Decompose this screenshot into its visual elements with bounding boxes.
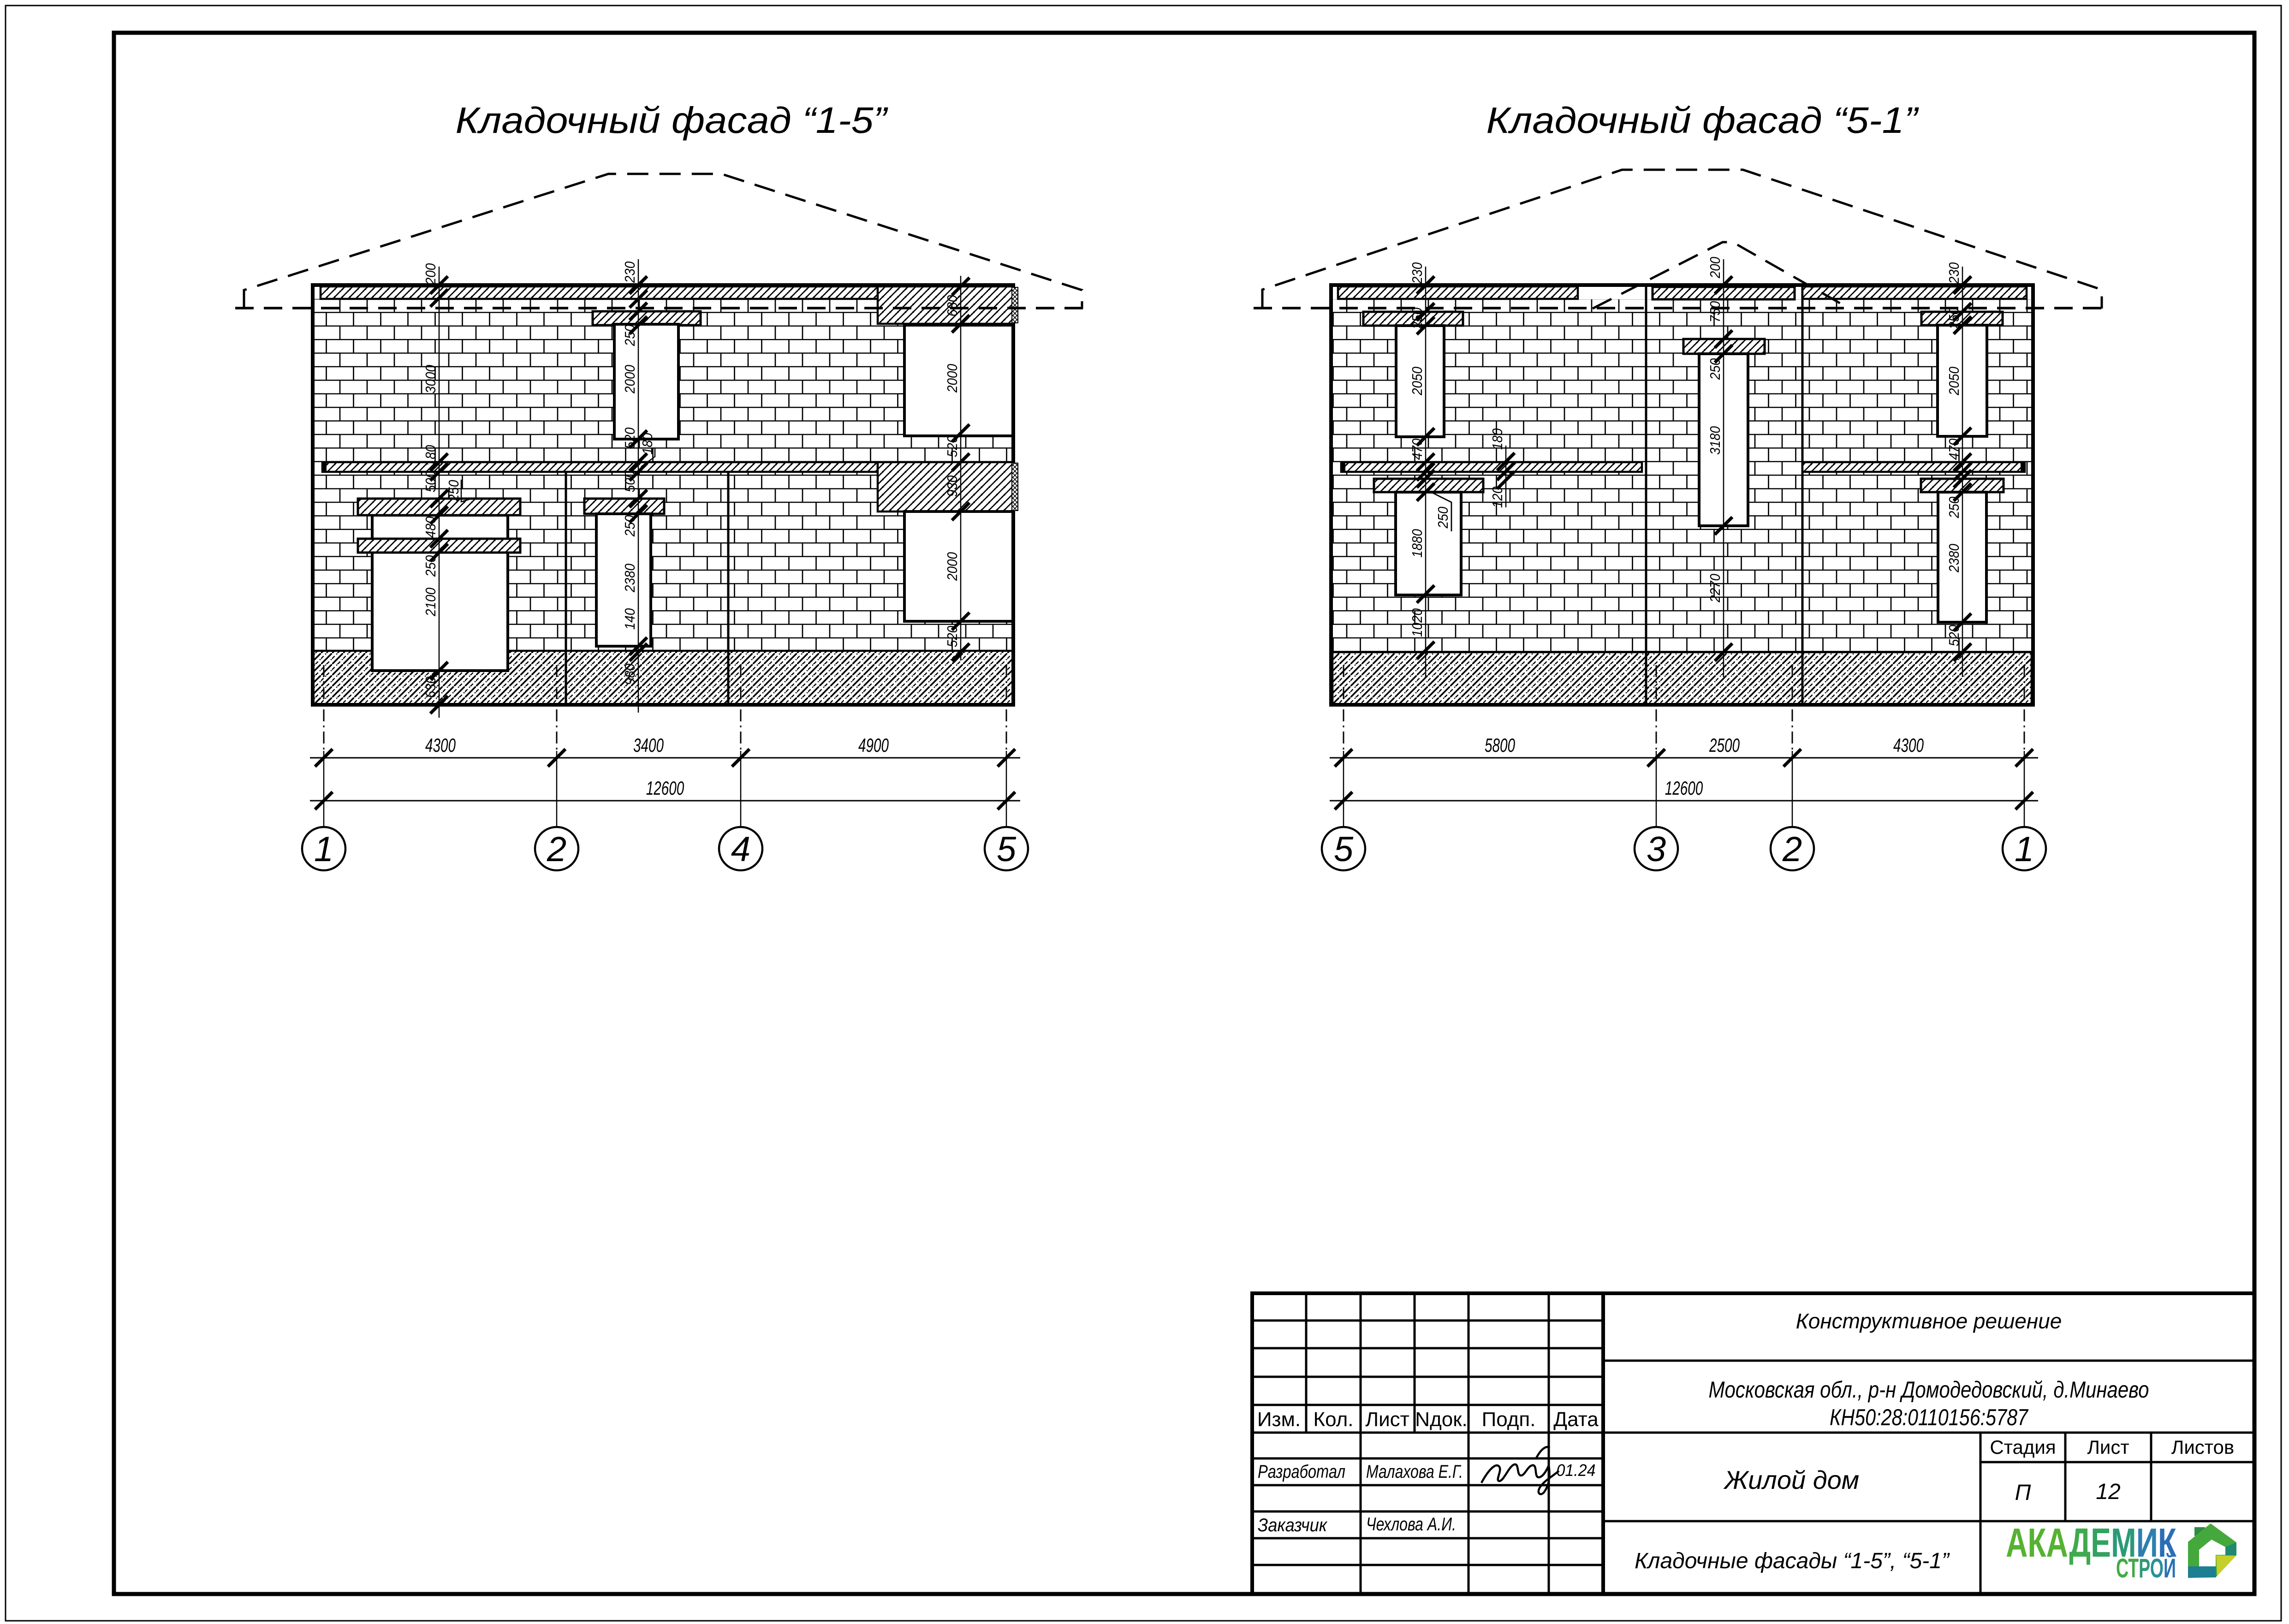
svg-text:250: 250 bbox=[1409, 308, 1425, 329]
svg-text:2500: 2500 bbox=[1709, 734, 1740, 756]
svg-text:180: 180 bbox=[422, 445, 439, 467]
svg-text:3: 3 bbox=[1647, 830, 1666, 869]
svg-text:12: 12 bbox=[2096, 1480, 2120, 1504]
svg-text:250: 250 bbox=[422, 555, 439, 577]
svg-text:01.24: 01.24 bbox=[1557, 1461, 1596, 1480]
svg-text:Разработал: Разработал bbox=[1258, 1462, 1345, 1482]
svg-text:2050: 2050 bbox=[1946, 367, 1962, 396]
svg-text:500: 500 bbox=[422, 471, 439, 493]
svg-text:5: 5 bbox=[1334, 830, 1354, 869]
svg-text:630: 630 bbox=[422, 677, 439, 698]
svg-text:Конструктивное решение: Конструктивное решение bbox=[1796, 1309, 2062, 1333]
svg-text:12600: 12600 bbox=[1665, 777, 1703, 799]
svg-text:Изм.: Изм. bbox=[1257, 1408, 1301, 1431]
svg-text:П: П bbox=[2015, 1481, 2031, 1505]
svg-text:250: 250 bbox=[446, 480, 462, 502]
svg-text:Лист: Лист bbox=[2087, 1436, 2129, 1458]
svg-text:4900: 4900 bbox=[858, 734, 889, 756]
svg-text:Малахова Е.Г.: Малахова Е.Г. bbox=[1366, 1462, 1463, 1482]
svg-text:2000: 2000 bbox=[944, 552, 960, 581]
svg-text:520: 520 bbox=[944, 436, 960, 458]
svg-text:2380: 2380 bbox=[1946, 544, 1962, 573]
svg-text:520: 520 bbox=[1946, 625, 1962, 647]
svg-text:Стадия: Стадия bbox=[1990, 1436, 2056, 1458]
svg-text:2000: 2000 bbox=[622, 365, 638, 394]
svg-text:4300: 4300 bbox=[425, 734, 456, 756]
svg-text:Чехлова А.И.: Чехлова А.И. bbox=[1366, 1514, 1456, 1535]
svg-text:200: 200 bbox=[422, 263, 439, 285]
svg-text:Жилой дом: Жилой дом bbox=[1723, 1465, 1859, 1494]
svg-text:930: 930 bbox=[944, 476, 960, 497]
svg-text:4300: 4300 bbox=[1893, 734, 1924, 756]
svg-text:250: 250 bbox=[622, 325, 638, 346]
svg-text:520: 520 bbox=[622, 428, 638, 449]
svg-text:470: 470 bbox=[1946, 439, 1962, 460]
svg-text:180: 180 bbox=[639, 433, 655, 455]
svg-text:5: 5 bbox=[997, 830, 1017, 869]
svg-text:520: 520 bbox=[944, 626, 960, 648]
svg-text:500: 500 bbox=[622, 471, 638, 493]
svg-text:140: 140 bbox=[622, 608, 638, 630]
svg-text:12600: 12600 bbox=[646, 777, 684, 799]
svg-text:1020: 1020 bbox=[1409, 608, 1425, 637]
svg-text:Кладочный фасад “5-1”: Кладочный фасад “5-1” bbox=[1486, 100, 1920, 141]
svg-text:750: 750 bbox=[1707, 301, 1723, 323]
svg-text:2000: 2000 bbox=[944, 364, 960, 393]
svg-text:230: 230 bbox=[1409, 262, 1425, 284]
svg-text:250: 250 bbox=[1435, 507, 1451, 529]
svg-text:Кладочный фасад “1-5”: Кладочный фасад “1-5” bbox=[456, 100, 889, 141]
svg-text:Заказчик: Заказчик bbox=[1258, 1515, 1328, 1535]
svg-text:250: 250 bbox=[622, 515, 638, 537]
svg-text:3180: 3180 bbox=[1707, 426, 1723, 455]
svg-text:КН50:28:0110156:5787: КН50:28:0110156:5787 bbox=[1830, 1404, 2029, 1430]
svg-text:2100: 2100 bbox=[422, 588, 439, 617]
svg-text:250: 250 bbox=[1946, 308, 1962, 329]
svg-text:480: 480 bbox=[422, 517, 439, 538]
svg-text:Подп.: Подп. bbox=[1482, 1408, 1536, 1431]
svg-text:2380: 2380 bbox=[622, 564, 638, 593]
svg-text:2050: 2050 bbox=[1409, 367, 1425, 396]
svg-text:Кладочные фасады “1-5”, “5-1”: Кладочные фасады “1-5”, “5-1” bbox=[1635, 1549, 1950, 1573]
svg-text:230: 230 bbox=[1946, 262, 1962, 284]
svg-text:250: 250 bbox=[1707, 358, 1723, 380]
svg-text:680: 680 bbox=[944, 295, 960, 317]
svg-text:1880: 1880 bbox=[1409, 529, 1425, 558]
svg-text:Дата: Дата bbox=[1553, 1408, 1599, 1431]
svg-text:980: 980 bbox=[622, 664, 638, 685]
svg-text:200: 200 bbox=[1707, 257, 1723, 279]
svg-text:180: 180 bbox=[1489, 428, 1505, 450]
svg-text:250: 250 bbox=[1946, 497, 1962, 518]
svg-text:230: 230 bbox=[622, 262, 638, 283]
svg-text:5800: 5800 bbox=[1485, 734, 1515, 756]
svg-text:3400: 3400 bbox=[633, 734, 664, 756]
svg-text:Московская обл., р-н Домодедов: Московская обл., р-н Домодедовский, д.Ми… bbox=[1709, 1377, 2149, 1403]
svg-text:2270: 2270 bbox=[1707, 574, 1723, 603]
svg-text:1: 1 bbox=[2015, 830, 2034, 869]
svg-text:Кол.: Кол. bbox=[1313, 1408, 1353, 1431]
svg-text:2: 2 bbox=[1782, 830, 1802, 869]
svg-text:Nдок.: Nдок. bbox=[1415, 1408, 1467, 1431]
svg-text:2: 2 bbox=[547, 830, 566, 869]
svg-text:4: 4 bbox=[731, 830, 750, 869]
svg-text:470: 470 bbox=[1409, 439, 1425, 460]
svg-text:Лист: Лист bbox=[1365, 1408, 1409, 1431]
svg-text:3000: 3000 bbox=[422, 365, 439, 393]
svg-text:1: 1 bbox=[314, 830, 333, 869]
svg-text:СТРОЙ: СТРОЙ bbox=[2116, 1553, 2176, 1583]
svg-text:120: 120 bbox=[1489, 487, 1505, 508]
svg-text:Листов: Листов bbox=[2171, 1436, 2234, 1458]
